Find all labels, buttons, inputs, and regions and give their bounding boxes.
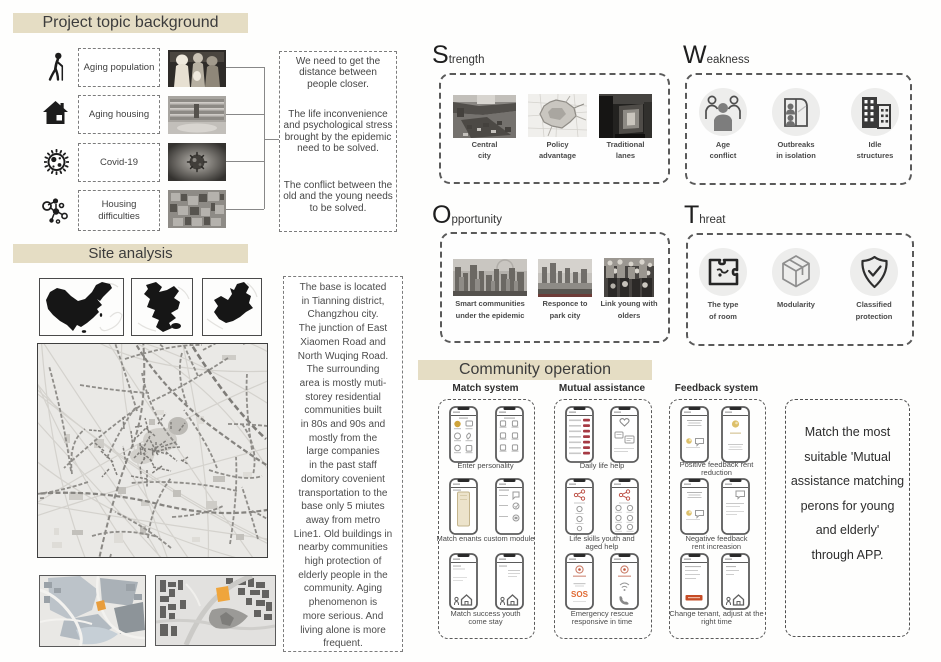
svg-text:SOS: SOS [571, 590, 589, 599]
